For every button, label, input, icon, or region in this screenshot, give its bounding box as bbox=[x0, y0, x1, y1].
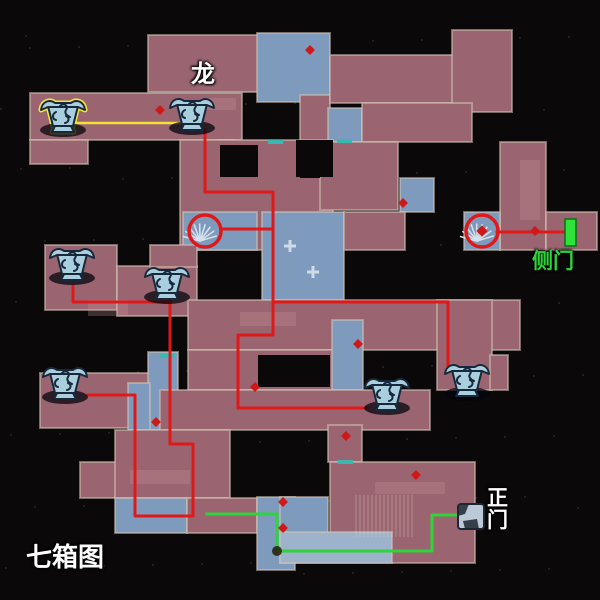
noise-speck bbox=[10, 434, 12, 436]
noise-speck bbox=[382, 366, 384, 368]
noise-speck bbox=[5, 567, 7, 569]
noise-speck bbox=[108, 432, 110, 434]
noise-speck bbox=[499, 569, 501, 571]
noise-speck bbox=[34, 506, 36, 508]
map-void bbox=[258, 355, 330, 387]
noise-speck bbox=[406, 438, 408, 440]
side-door-exit-marker bbox=[565, 219, 576, 246]
noise-speck bbox=[127, 45, 129, 47]
noise-speck bbox=[524, 496, 526, 498]
noise-speck bbox=[83, 505, 85, 507]
noise-speck bbox=[401, 571, 403, 573]
path-corner-blob bbox=[272, 546, 282, 556]
cyan-door-marker bbox=[160, 354, 175, 358]
map-room bbox=[115, 430, 230, 498]
noise-speck bbox=[59, 433, 61, 435]
floor-tint bbox=[375, 482, 445, 494]
map-room bbox=[400, 178, 434, 212]
label-side-door: 侧门 bbox=[532, 251, 574, 273]
noise-speck bbox=[15, 301, 17, 303]
map-room bbox=[300, 95, 330, 142]
noise-speck bbox=[201, 563, 203, 565]
map-room bbox=[490, 355, 508, 390]
floor-tint bbox=[520, 160, 540, 220]
map-void bbox=[220, 145, 258, 177]
map-room bbox=[328, 425, 362, 462]
noise-speck bbox=[465, 171, 467, 173]
noise-speck bbox=[519, 37, 521, 39]
noise-speck bbox=[421, 39, 423, 41]
label-main-gate: 正 门 bbox=[487, 488, 508, 532]
map-room bbox=[280, 532, 392, 563]
noise-speck bbox=[455, 437, 457, 439]
noise-speck bbox=[250, 562, 252, 564]
noise-speck bbox=[440, 244, 442, 246]
noise-speck bbox=[93, 239, 95, 241]
noise-speck bbox=[308, 440, 310, 442]
map-room bbox=[328, 108, 362, 142]
floor-tint bbox=[130, 470, 190, 484]
noise-speck bbox=[44, 240, 46, 242]
map-void bbox=[300, 142, 320, 178]
noise-speck bbox=[303, 573, 305, 575]
cyan-door-marker bbox=[337, 139, 352, 143]
noise-speck bbox=[142, 238, 144, 240]
noise-speck bbox=[122, 178, 124, 180]
noise-speck bbox=[568, 36, 570, 38]
main-gate-icon bbox=[458, 504, 484, 529]
noise-speck bbox=[504, 436, 506, 438]
noise-speck bbox=[372, 40, 374, 42]
noise-speck bbox=[25, 35, 27, 37]
map-room bbox=[344, 212, 405, 250]
cyan-door-marker bbox=[268, 140, 283, 144]
noise-speck bbox=[548, 568, 550, 570]
map-room bbox=[330, 55, 454, 103]
map-room bbox=[362, 103, 472, 142]
map-svg bbox=[0, 0, 600, 600]
map-room bbox=[257, 33, 330, 102]
map-stage: 龙侧门正 门七箱图 bbox=[0, 0, 600, 600]
noise-speck bbox=[553, 435, 555, 437]
noise-speck bbox=[450, 570, 452, 572]
noise-speck bbox=[0, 108, 2, 110]
label-dragon: 龙 bbox=[191, 62, 215, 87]
noise-speck bbox=[69, 167, 71, 169]
map-room bbox=[30, 140, 88, 164]
map-room bbox=[128, 383, 150, 430]
noise-speck bbox=[577, 507, 579, 509]
noise-speck bbox=[416, 172, 418, 174]
map-room bbox=[452, 30, 512, 112]
noise-speck bbox=[259, 441, 261, 443]
cyan-door-marker bbox=[338, 460, 353, 464]
noise-speck bbox=[543, 109, 545, 111]
noise-speck bbox=[352, 572, 354, 574]
noise-speck bbox=[29, 47, 31, 49]
map-room bbox=[150, 245, 197, 267]
noise-speck bbox=[20, 168, 22, 170]
noise-speck bbox=[171, 177, 173, 179]
map-room bbox=[332, 320, 363, 390]
noise-speck bbox=[245, 103, 247, 105]
noise-speck bbox=[431, 365, 433, 367]
label-seven-boxes: 七箱图 bbox=[26, 544, 104, 571]
noise-speck bbox=[533, 375, 535, 377]
noise-speck bbox=[152, 564, 154, 566]
noise-speck bbox=[582, 374, 584, 376]
noise-speck bbox=[78, 46, 80, 48]
noise-speck bbox=[563, 169, 565, 171]
floor-tint bbox=[240, 312, 296, 326]
noise-speck bbox=[558, 302, 560, 304]
